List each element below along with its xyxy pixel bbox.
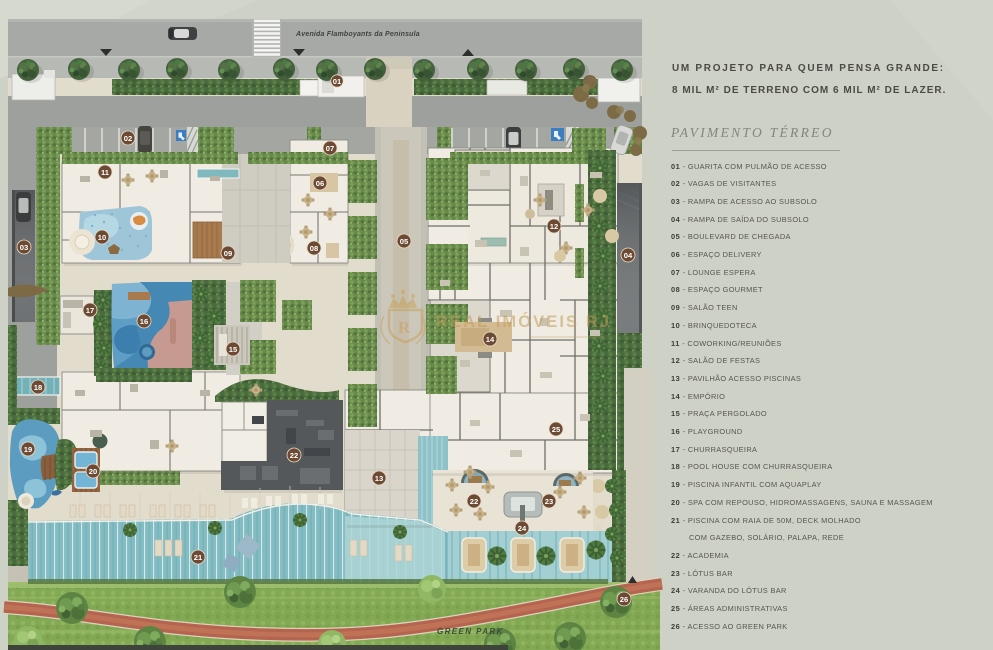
svg-text:03: 03 — [20, 243, 28, 252]
svg-text:18: 18 — [34, 383, 42, 392]
svg-text:11: 11 — [101, 168, 110, 177]
svg-text:07: 07 — [326, 144, 334, 153]
svg-text:REAL IMÓVEIS RJ: REAL IMÓVEIS RJ — [436, 312, 611, 331]
svg-text:Avenida Flamboyants da Peninsu: Avenida Flamboyants da Peninsula — [295, 31, 420, 38]
svg-text:02: 02 — [124, 134, 132, 143]
svg-text:26: 26 — [620, 595, 628, 604]
svg-text:09: 09 — [224, 249, 232, 258]
svg-text:GREEN PARK: GREEN PARK — [437, 627, 504, 636]
svg-text:R: R — [398, 318, 411, 337]
svg-text:05: 05 — [400, 237, 409, 246]
svg-text:19: 19 — [24, 445, 32, 454]
svg-text:15: 15 — [229, 345, 238, 354]
svg-text:06: 06 — [316, 179, 324, 188]
svg-text:21: 21 — [194, 553, 203, 562]
svg-text:10: 10 — [98, 233, 106, 242]
svg-text:23: 23 — [545, 497, 553, 506]
svg-text:20: 20 — [89, 467, 97, 476]
svg-text:13: 13 — [375, 474, 383, 483]
svg-text:01: 01 — [333, 77, 342, 86]
svg-text:12: 12 — [550, 222, 558, 231]
svg-text:22: 22 — [290, 451, 298, 460]
svg-text:14: 14 — [486, 335, 495, 344]
svg-text:04: 04 — [624, 251, 633, 260]
svg-text:08: 08 — [310, 244, 318, 253]
svg-text:22: 22 — [470, 497, 478, 506]
svg-text:24: 24 — [518, 524, 527, 533]
svg-text:17: 17 — [86, 306, 94, 315]
svg-text:25: 25 — [552, 425, 561, 434]
svg-text:16: 16 — [140, 317, 148, 326]
